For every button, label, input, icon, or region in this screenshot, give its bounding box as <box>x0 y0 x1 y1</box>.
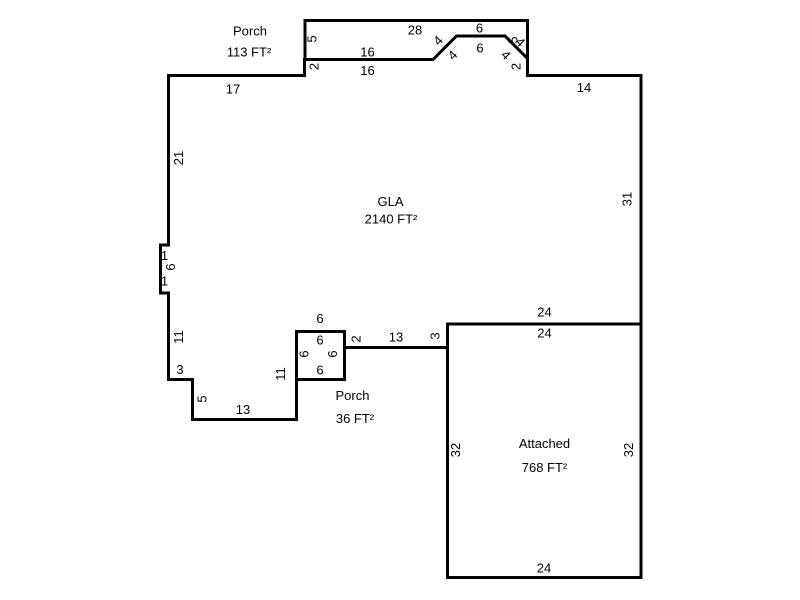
svg-text:6: 6 <box>325 350 340 357</box>
svg-text:5: 5 <box>305 35 320 42</box>
svg-text:GLA: GLA <box>377 194 403 209</box>
svg-text:2: 2 <box>349 335 364 342</box>
svg-text:32: 32 <box>621 443 636 457</box>
svg-text:11: 11 <box>273 367 288 381</box>
svg-text:2140 FT²: 2140 FT² <box>365 212 418 227</box>
svg-text:2: 2 <box>307 63 322 70</box>
svg-text:4: 4 <box>498 47 514 63</box>
svg-text:6: 6 <box>316 311 323 326</box>
svg-text:2: 2 <box>509 63 524 70</box>
svg-text:3: 3 <box>428 332 443 339</box>
svg-text:4: 4 <box>445 47 461 63</box>
svg-text:6: 6 <box>316 333 323 348</box>
svg-text:24: 24 <box>537 305 551 320</box>
svg-text:28: 28 <box>408 23 422 38</box>
svg-text:5: 5 <box>195 395 210 402</box>
svg-text:Porch: Porch <box>336 388 370 403</box>
svg-text:14: 14 <box>577 80 591 95</box>
svg-text:16: 16 <box>360 45 374 60</box>
svg-text:17: 17 <box>226 82 240 97</box>
svg-text:16: 16 <box>360 63 374 78</box>
svg-text:Porch: Porch <box>233 24 267 39</box>
svg-text:113 FT²: 113 FT² <box>227 45 272 60</box>
svg-text:24: 24 <box>537 326 551 341</box>
svg-text:1: 1 <box>161 274 168 289</box>
svg-text:6: 6 <box>316 363 323 378</box>
svg-text:6: 6 <box>476 41 483 56</box>
svg-text:6: 6 <box>476 21 483 36</box>
svg-text:768 FT²: 768 FT² <box>522 460 568 475</box>
svg-text:1: 1 <box>161 248 168 263</box>
svg-text:32: 32 <box>448 443 463 457</box>
svg-text:24: 24 <box>537 561 551 576</box>
svg-text:4: 4 <box>430 33 446 49</box>
svg-text:13: 13 <box>389 330 403 345</box>
svg-text:6: 6 <box>163 263 178 270</box>
svg-text:Attached: Attached <box>519 436 570 451</box>
svg-text:36 FT²: 36 FT² <box>336 411 375 426</box>
svg-text:13: 13 <box>236 402 250 417</box>
svg-text:6: 6 <box>297 350 312 357</box>
svg-text:11: 11 <box>171 330 186 344</box>
svg-text:31: 31 <box>620 192 635 206</box>
svg-text:3: 3 <box>176 362 183 377</box>
svg-text:21: 21 <box>171 151 186 165</box>
